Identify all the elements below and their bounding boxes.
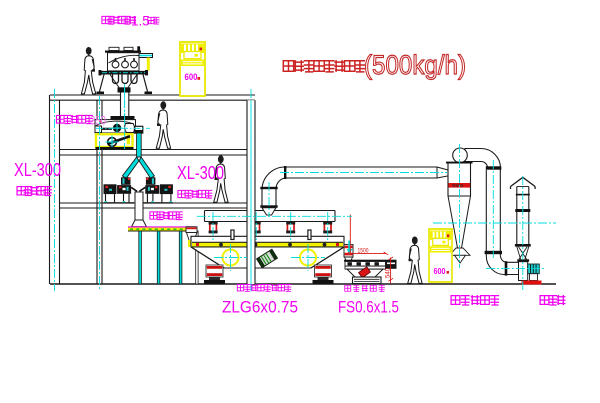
svg-text:Φ600: Φ600 bbox=[452, 183, 464, 188]
svg-text:1500: 1500 bbox=[358, 249, 370, 255]
svg-text:600: 600 bbox=[185, 72, 198, 82]
svg-text:XL-300: XL-300 bbox=[14, 159, 61, 180]
svg-text:1.5: 1.5 bbox=[131, 14, 150, 29]
svg-text:(500kg/h): (500kg/h) bbox=[364, 50, 466, 80]
svg-text:ZLG6x0.75: ZLG6x0.75 bbox=[222, 298, 298, 317]
svg-text:FS0.6x1.5: FS0.6x1.5 bbox=[338, 298, 399, 317]
svg-text:540: 540 bbox=[386, 267, 392, 278]
svg-text:350: 350 bbox=[90, 114, 106, 128]
svg-text:XL-300: XL-300 bbox=[177, 162, 224, 183]
svg-text:600: 600 bbox=[434, 266, 446, 276]
